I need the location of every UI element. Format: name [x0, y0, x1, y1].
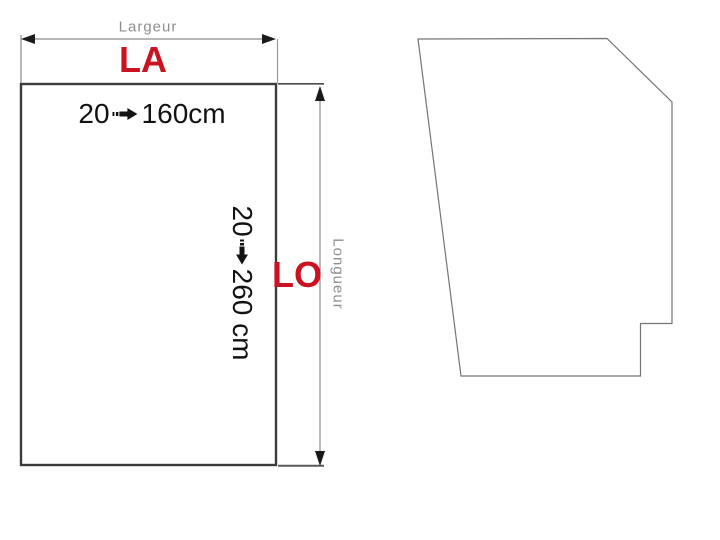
diagram-canvas: Largeur LA 20 160cm 20 260 cm LO Longueu… — [0, 0, 720, 540]
range-arrow-icon — [113, 107, 139, 121]
dimension-drawing — [0, 0, 720, 540]
range-arrow-icon — [235, 240, 249, 266]
width-code-label: LA — [119, 39, 167, 81]
width-max-value: 160cm — [142, 100, 226, 128]
custom-shape-outline — [418, 39, 672, 377]
width-arrowhead-left — [21, 34, 35, 44]
width-dimension-label: Largeur — [119, 19, 178, 36]
length-min-value: 20 — [228, 206, 256, 237]
length-arrowhead-top — [315, 86, 325, 101]
length-range-text: 20 260 cm — [228, 206, 256, 361]
length-max-value: 260 cm — [228, 269, 256, 361]
length-code-label: LO — [272, 254, 322, 296]
width-arrowhead-right — [262, 34, 276, 44]
width-min-value: 20 — [78, 100, 109, 128]
width-range-text: 20 160cm — [78, 100, 225, 128]
length-dimension-label: Longueur — [330, 238, 347, 309]
length-arrowhead-bottom — [315, 451, 325, 466]
